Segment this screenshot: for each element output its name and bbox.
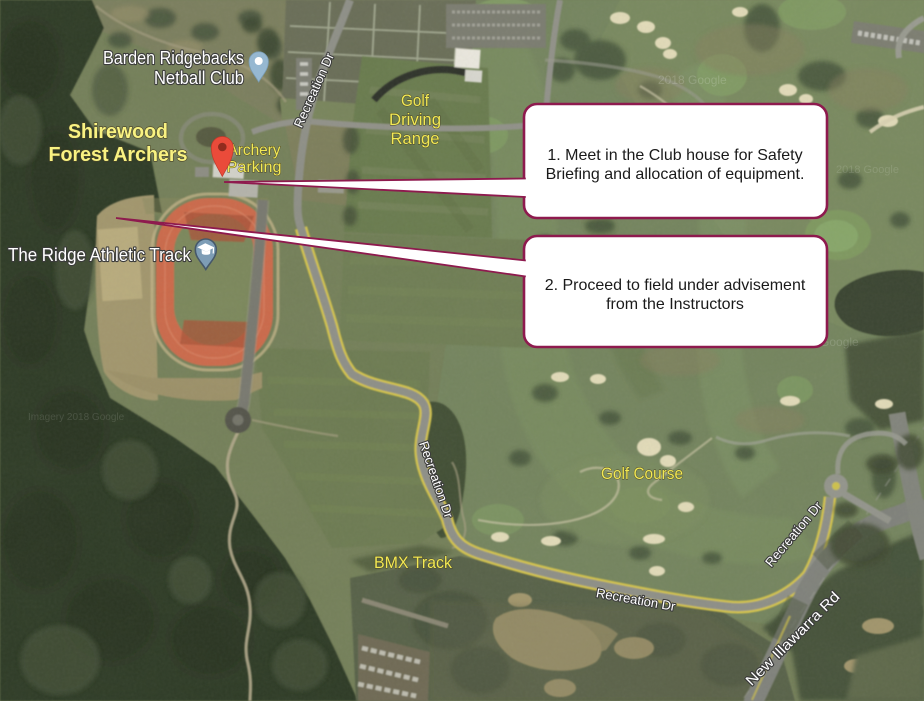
svg-text:2018 Google: 2018 Google <box>836 164 899 176</box>
svg-text:Driving: Driving <box>389 110 441 129</box>
svg-text:Netball Club: Netball Club <box>154 68 244 88</box>
svg-text:Golf: Golf <box>401 91 429 110</box>
svg-text:2. Proceed to field under advi: 2. Proceed to field under advisement <box>545 277 806 294</box>
svg-text:The Ridge Athletic Track: The Ridge Athletic Track <box>8 245 192 265</box>
svg-text:1. Meet in the Club house for: 1. Meet in the Club house for Safety <box>547 147 802 164</box>
svg-text:from the Instructors: from the Instructors <box>606 296 744 313</box>
svg-text:Parking: Parking <box>227 159 282 176</box>
svg-text:Range: Range <box>391 129 440 148</box>
svg-text:BMX Track: BMX Track <box>374 553 452 572</box>
svg-text:2018 Google: 2018 Google <box>658 73 727 87</box>
svg-text:Shirewood: Shirewood <box>68 121 168 143</box>
svg-text:Barden Ridgebacks: Barden Ridgebacks <box>103 48 244 68</box>
svg-text:Golf Course: Golf Course <box>601 464 683 483</box>
svg-text:Archery: Archery <box>228 142 281 159</box>
svg-text:Briefing and allocation of equ: Briefing and allocation of equipment. <box>546 166 805 183</box>
svg-text:Forest Archers: Forest Archers <box>49 144 188 166</box>
svg-text:Imagery 2018 Google: Imagery 2018 Google <box>28 412 125 423</box>
